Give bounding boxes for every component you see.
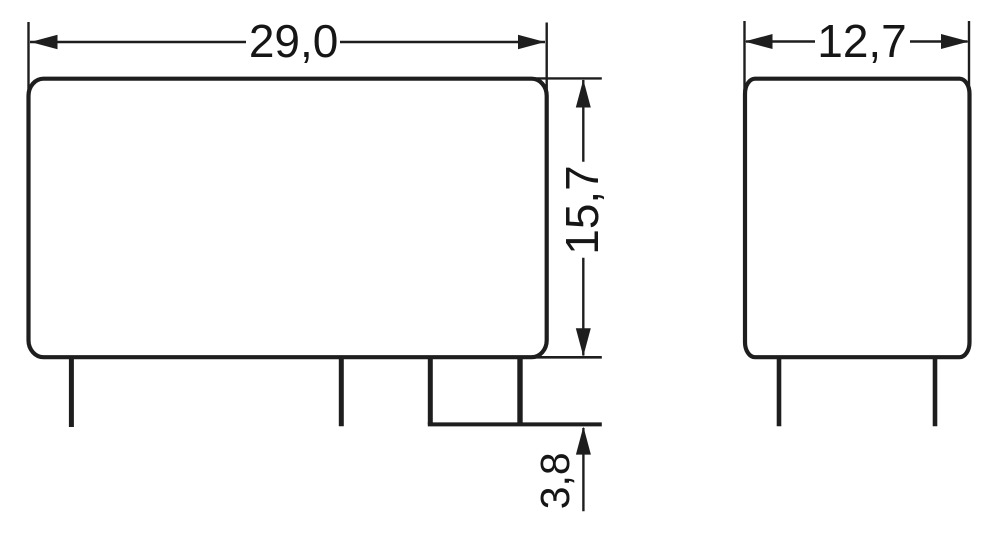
svg-text:3,8: 3,8 bbox=[532, 452, 578, 509]
svg-text:29,0: 29,0 bbox=[249, 15, 339, 67]
svg-text:12,7: 12,7 bbox=[817, 15, 907, 67]
svg-text:15,7: 15,7 bbox=[556, 165, 608, 255]
